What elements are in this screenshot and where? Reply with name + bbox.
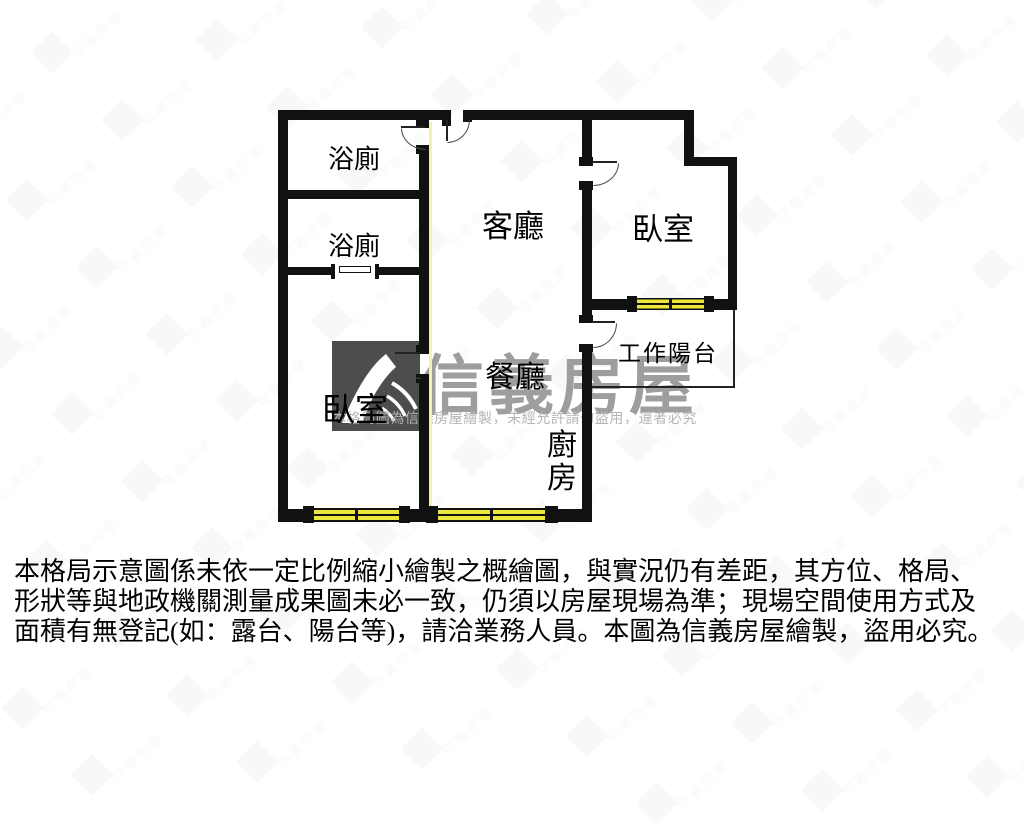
watermark-tile-text: 信義房屋 <box>202 647 262 704</box>
wall-right-main-lower <box>582 348 592 522</box>
watermark-tile-text: 信義房屋 <box>702 100 762 157</box>
watermark-tile-diamond-icon <box>501 140 543 182</box>
watermark-tile-diamond-icon <box>496 648 538 690</box>
watermark-tile-diamond-icon <box>801 769 843 811</box>
watermark-tile-diamond-icon <box>146 313 188 355</box>
room-label-dining: 餐廳 <box>453 352 577 396</box>
watermark-tile-text: 信義房屋 <box>817 381 877 438</box>
watermark-tile-diamond-icon <box>241 233 283 275</box>
watermark-tile-text: 信義房屋 <box>727 0 787 10</box>
wall-interior-vertical-lower <box>419 377 429 522</box>
sliding-door-stop-left <box>331 264 335 279</box>
watermark-tile-text: 信義房屋 <box>602 688 662 745</box>
watermark-tile-diamond-icon <box>76 246 118 288</box>
bedroom-right-door-jamb-upper <box>579 157 593 166</box>
watermark-tile-diamond-icon <box>71 754 113 796</box>
floorplan-page: { "floorplan": { "labels": { "bath_top":… <box>0 0 1024 768</box>
watermark-tile-text: 信義房屋 <box>842 234 902 291</box>
watermark-tile-text: 信義房屋 <box>632 33 692 90</box>
window3-mullion <box>669 298 672 310</box>
balcony-outline-bottom <box>592 386 735 388</box>
watermark-tile-text: 信義房屋 <box>67 5 127 62</box>
room-label-bath-top: 浴廁 <box>312 139 396 176</box>
watermark-tile-text: 信義房屋 <box>0 85 32 142</box>
watermark-tile-text: 信義房屋 <box>272 714 332 771</box>
sliding-door-panel <box>339 266 371 273</box>
wall-top-right-segment <box>468 110 693 120</box>
wall-bath-bottom-right <box>378 267 429 275</box>
window2-cap-right <box>545 506 558 523</box>
watermark-tile-diamond-icon <box>331 661 373 703</box>
wall-interior-vertical-middle <box>419 148 429 353</box>
room-label-bedroom-left: 臥室 <box>293 383 417 431</box>
watermark-tile-diamond-icon <box>431 73 473 115</box>
window1-bedroom-left <box>314 508 399 522</box>
bedroom-right-door-jamb-lower <box>579 181 593 190</box>
watermark-tile-diamond-icon <box>166 674 208 716</box>
watermark-tile-text: 信義房屋 <box>182 286 242 343</box>
window3-cap-right <box>704 296 714 312</box>
watermark-tile-text: 信義房屋 <box>17 299 77 356</box>
watermark-tile-text: 信義房屋 <box>0 446 52 503</box>
watermark-tile-diamond-icon <box>996 101 1024 143</box>
watermark-tile-diamond-icon <box>1016 462 1024 504</box>
watermark-tile-text: 信義房屋 <box>767 675 827 732</box>
watermark-tile-diamond-icon <box>851 475 893 517</box>
window2-dining <box>438 508 545 522</box>
wall-bath-bottom-left <box>278 267 333 275</box>
watermark-tile-text: 信義房屋 <box>772 167 832 224</box>
watermark-tile-diamond-icon <box>196 19 238 61</box>
watermark-tile-text: 信義房屋 <box>722 461 782 518</box>
watermark-tile-text: 信義房屋 <box>347 273 407 330</box>
watermark-tile-diamond-icon <box>636 782 678 824</box>
watermark-tile-text: 信義房屋 <box>87 366 147 423</box>
watermark-tile-text: 信義房屋 <box>107 727 167 784</box>
watermark-tile-diamond-icon <box>686 488 728 530</box>
watermark-tile-diamond-icon <box>806 261 848 303</box>
watermark-tile-diamond-icon <box>361 6 403 48</box>
disclaimer-line-3: 面積有無登記(如：露台、陽台等)，請洽業務人員。本圖為信義房屋繪製，盜用必究。 <box>14 617 1014 647</box>
watermark-tile-diamond-icon <box>971 248 1013 290</box>
watermark-tile-text: 信義房屋 <box>797 20 857 77</box>
watermark-tile-diamond-icon <box>451 434 493 476</box>
watermark-tile-diamond-icon <box>566 715 608 757</box>
wall-right-main-upper <box>582 110 592 161</box>
room-label-balcony: 工作陽台 <box>596 334 740 368</box>
disclaimer-line-1: 本格局示意圖係未依一定比例縮小繪製之概繪圖，與實況仍有差距，其方位、格局、 <box>14 557 1014 587</box>
watermark-tile-text: 信義房屋 <box>982 368 1024 425</box>
watermark-tile-diamond-icon <box>51 393 93 435</box>
balcony-door-jamb-lower <box>579 344 593 352</box>
room-label-living: 客廳 <box>451 201 575 246</box>
watermark-tile-text: 信義房屋 <box>562 0 622 23</box>
watermark-tile-text: 信義房屋 <box>747 314 807 371</box>
watermark-tile-diamond-icon <box>856 0 898 9</box>
watermark-tile-text: 信義房屋 <box>912 301 972 358</box>
watermark-tile-diamond-icon <box>311 300 353 342</box>
watermark-tile-text: 信義房屋 <box>867 87 927 144</box>
watermark-tile-diamond-icon <box>736 194 778 236</box>
watermark-tile-diamond-icon <box>286 447 328 489</box>
watermark-tile-diamond-icon <box>101 99 143 141</box>
window1-cap-right <box>399 506 410 523</box>
watermark-tile-text: 信義房屋 <box>37 660 97 717</box>
watermark-tile-diamond-icon <box>926 34 968 76</box>
watermark-tile-diamond-icon <box>0 0 3 7</box>
sliding-door-stop-right <box>375 264 379 279</box>
watermark-tile-text: 信義房屋 <box>437 701 497 758</box>
watermark-tile-diamond-icon <box>876 328 918 370</box>
watermark-tile-diamond-icon <box>781 408 823 450</box>
window2-cap-left <box>426 506 438 523</box>
watermark-tile-diamond-icon <box>236 741 278 783</box>
wall-bath-divider <box>288 190 419 199</box>
watermark-tile-text: 信義房屋 <box>962 7 1022 64</box>
watermark-tile-diamond-icon <box>731 702 773 744</box>
room-label-bedroom-right: 臥室 <box>601 204 725 249</box>
window3-cap-left <box>627 296 637 312</box>
watermark-tile-text: 信義房屋 <box>207 139 267 196</box>
watermark-tile-text: 信義房屋 <box>937 154 997 211</box>
watermark-tile-diamond-icon <box>1 687 43 729</box>
entry-door-swing-arc <box>447 120 470 143</box>
watermark-tile-text: 信義房屋 <box>512 260 572 317</box>
watermark-tile-text: 信義房屋 <box>42 152 102 209</box>
wall-left-outer <box>278 110 288 522</box>
watermark-tile-diamond-icon <box>171 166 213 208</box>
watermark-tile-text: 信義房屋 <box>157 433 217 490</box>
watermark-tile-diamond-icon <box>901 181 943 223</box>
window2-mullion <box>490 508 493 522</box>
balcony-door-jamb-upper <box>579 315 593 323</box>
watermark-tile-diamond-icon <box>401 728 443 770</box>
window3-bedroom-right <box>637 298 704 310</box>
bedroom-right-door-swing-arc <box>593 163 619 186</box>
watermark-tile-diamond-icon <box>691 0 733 22</box>
watermark-tile-diamond-icon <box>896 689 938 731</box>
watermark-tile-text: 信義房屋 <box>137 72 197 129</box>
watermark-tile-diamond-icon <box>966 756 1008 798</box>
watermark-tile-text: 信義房屋 <box>112 219 172 276</box>
watermark-tile-diamond-icon <box>476 287 518 329</box>
disclaimer-line-2: 形狀等與地政機關測量成果圖未必一致，仍須以房屋現場為準；現場空間使用方式及 <box>14 587 1014 617</box>
watermark-tile-diamond-icon <box>121 460 163 502</box>
window1-cap-left <box>303 506 314 523</box>
wall-right-outer <box>728 157 737 310</box>
watermark-tile-diamond-icon <box>946 395 988 437</box>
watermark-tile-text: 信義房屋 <box>467 46 527 103</box>
watermark-tile-text: 信義房屋 <box>232 0 292 49</box>
watermark-tile-diamond-icon <box>0 326 23 368</box>
watermark-tile-text: 信義房屋 <box>932 662 992 719</box>
room-label-bath-mid: 浴廁 <box>312 226 396 263</box>
watermark-tile-text: 信義房屋 <box>672 755 732 812</box>
watermark-tile-diamond-icon <box>831 114 873 156</box>
watermark-tile-diamond-icon <box>31 32 73 74</box>
watermark-tile-text: 信義房屋 <box>837 742 897 799</box>
watermark-tile-text: 信義房屋 <box>887 448 947 505</box>
watermark-tile-diamond-icon <box>216 380 258 422</box>
watermark-tile-diamond-icon <box>526 0 568 35</box>
watermark-tile-diamond-icon <box>6 179 48 221</box>
window1-mullion <box>355 508 358 522</box>
scan-artifact-line <box>429 122 432 508</box>
watermark-tile-text: 信義房屋 <box>302 59 362 116</box>
watermark-tile-text: 信義房屋 <box>397 0 457 36</box>
watermark-tile-diamond-icon <box>761 47 803 89</box>
watermark-tile-diamond-icon <box>596 60 638 102</box>
room-label-kitchen: 廚房 <box>546 429 578 495</box>
